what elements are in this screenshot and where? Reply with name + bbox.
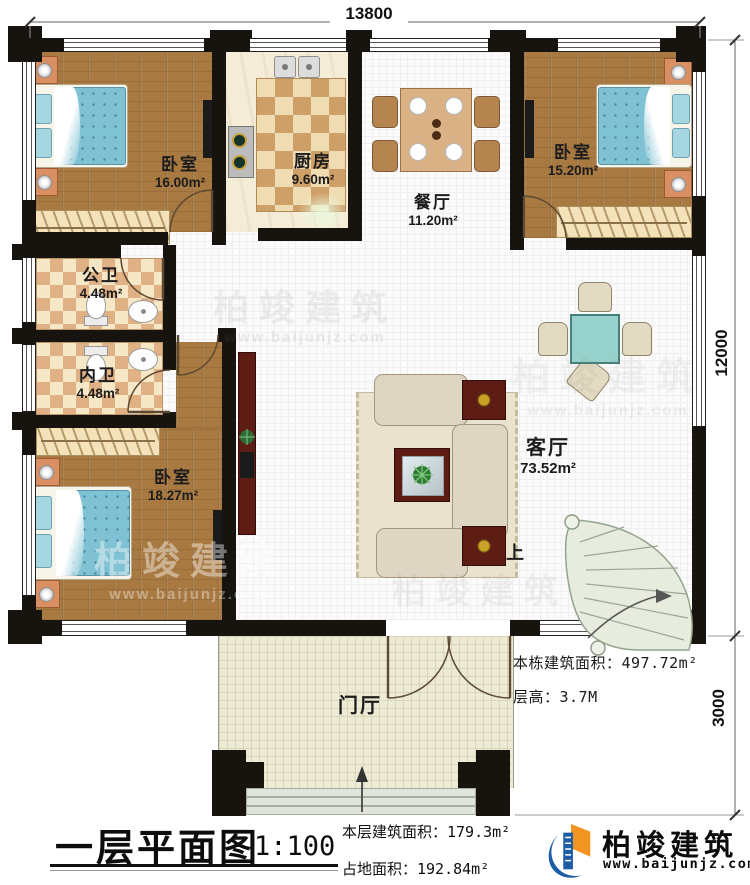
- window: [62, 620, 186, 636]
- wall: [36, 415, 176, 428]
- room-area: 15.20m²: [518, 163, 628, 179]
- dim-porch-height: 3000: [709, 676, 729, 740]
- wall: [163, 342, 176, 370]
- window: [558, 38, 660, 52]
- brand-website: www.baijunjz.com: [603, 856, 750, 872]
- corner-column: [676, 610, 706, 644]
- bed-sheet: [56, 490, 84, 576]
- room-label-bath-private: 内卫 4.48m²: [43, 366, 153, 401]
- wall-pier: [490, 30, 526, 52]
- bowl-icon: [432, 131, 441, 140]
- room-area: 4.48m²: [46, 286, 156, 302]
- pillow-icon: [672, 128, 690, 158]
- tv-icon: [203, 100, 212, 158]
- bedroom-bl-nook-floor: [176, 342, 222, 428]
- wall: [348, 52, 362, 241]
- dining-chair-icon: [372, 140, 398, 172]
- porch-column: [212, 750, 246, 816]
- window: [22, 62, 36, 200]
- wall: [36, 330, 176, 342]
- title-underline: [50, 870, 338, 871]
- square-table-icon: [570, 314, 620, 364]
- room-label-kitchen: 厨房 9.60m²: [258, 152, 368, 187]
- title-underline: [50, 864, 338, 867]
- wall-pier: [12, 412, 36, 430]
- land-area-note: 占地面积：192.84m²: [342, 858, 489, 879]
- window: [22, 345, 36, 411]
- room-name: 卧室: [518, 143, 628, 163]
- plate-icon: [445, 97, 463, 115]
- room-name: 餐厅: [378, 193, 488, 213]
- room-area: 16.00m²: [125, 175, 235, 191]
- floor-height-note: 层高：3.7M: [513, 686, 598, 707]
- room-name: 门厅: [305, 695, 415, 718]
- sofa-icon: [374, 374, 468, 426]
- kitchen-sink-icon: [274, 56, 296, 78]
- dim-main-height: 12000: [712, 316, 732, 390]
- window: [64, 38, 204, 52]
- corner-column: [8, 610, 42, 644]
- wall: [163, 245, 176, 332]
- plate-icon: [409, 97, 427, 115]
- nightstand-icon: [32, 580, 60, 608]
- dining-chair-icon: [474, 140, 500, 172]
- room-name: 公卫: [46, 266, 156, 286]
- room-label-foyer: 门厅: [305, 695, 415, 718]
- room-area: 4.48m²: [43, 386, 153, 402]
- room-label-bath-public: 公卫 4.48m²: [46, 266, 156, 301]
- dining-chair-icon: [474, 96, 500, 128]
- wall: [36, 245, 121, 258]
- nightstand-icon: [664, 58, 692, 86]
- room-label-dining: 餐厅 11.20m²: [378, 193, 488, 228]
- wall-pier: [12, 328, 36, 344]
- entry-step: [246, 788, 476, 797]
- room-name: 卧室: [118, 468, 228, 488]
- bed-sheet: [644, 87, 670, 165]
- corner-column: [676, 26, 706, 62]
- pillow-icon: [34, 94, 52, 124]
- pillow-icon: [34, 534, 52, 568]
- porch-column: [476, 750, 510, 816]
- window: [540, 620, 652, 636]
- entry-step: [246, 806, 476, 815]
- room-area: 11.20m²: [378, 213, 488, 229]
- room-name: 内卫: [43, 366, 153, 386]
- floorplan-page: { "dimensions": { "top_width": "13800", …: [0, 0, 750, 885]
- total-building-area-note: 本栋建筑面积：497.72m²: [513, 652, 698, 673]
- chair-icon: [538, 322, 568, 356]
- corner-column: [8, 26, 42, 62]
- room-label-bedroom-tl: 卧室 16.00m²: [125, 155, 235, 190]
- wardrobe-icon: [556, 206, 692, 238]
- wall-pier: [210, 30, 252, 52]
- drawing-scale: 1:100: [254, 831, 335, 862]
- window: [22, 258, 36, 322]
- sofa-icon: [376, 528, 468, 578]
- pillow-icon: [34, 496, 52, 530]
- window: [250, 38, 346, 52]
- window: [692, 256, 706, 426]
- room-name: 客厅: [488, 437, 608, 460]
- room-label-living: 客厅 73.52m²: [488, 437, 608, 477]
- room-area: 73.52m²: [488, 460, 608, 477]
- pillow-icon: [672, 94, 690, 124]
- porch-column: [458, 762, 476, 788]
- nightstand-icon: [664, 170, 692, 198]
- wardrobe-icon: [36, 424, 160, 456]
- tv-icon: [240, 452, 254, 478]
- dim-top-width: 13800: [330, 4, 408, 24]
- tv-icon: [213, 510, 222, 560]
- tv-cabinet-icon: [238, 352, 256, 535]
- window: [692, 72, 706, 196]
- chair-icon: [622, 322, 652, 356]
- room-label-bedroom-tr: 卧室 15.20m²: [518, 143, 628, 178]
- stove-burner: [232, 133, 247, 148]
- wall: [258, 228, 362, 241]
- bowl-icon: [432, 119, 441, 128]
- dining-chair-icon: [372, 96, 398, 128]
- side-table-icon: [462, 380, 506, 420]
- brand-logo-icon: [544, 820, 598, 880]
- nightstand-icon: [32, 458, 60, 486]
- pillow-icon: [34, 128, 52, 158]
- wall: [566, 238, 692, 250]
- plate-icon: [445, 143, 463, 161]
- floor-area-note: 本层建筑面积：179.3m²: [342, 821, 510, 842]
- window: [370, 38, 488, 52]
- bed-sheet: [54, 87, 80, 165]
- wall: [212, 52, 226, 245]
- wall-pier: [346, 30, 372, 52]
- room-area: 18.27m²: [118, 488, 228, 504]
- plate-icon: [409, 143, 427, 161]
- chair-icon: [578, 282, 612, 312]
- wall: [36, 232, 168, 245]
- kitchen-sink-icon: [298, 56, 320, 78]
- room-name: 卧室: [125, 155, 235, 175]
- room-area: 9.60m²: [258, 172, 368, 188]
- stair-up-label: 上: [495, 543, 535, 564]
- porch-column: [246, 762, 264, 788]
- window: [22, 455, 36, 595]
- washbasin-icon: [128, 300, 158, 323]
- entry-step: [246, 797, 476, 806]
- room-label-bedroom-bl: 卧室 18.27m²: [118, 468, 228, 503]
- coffee-table-glass: [402, 456, 444, 496]
- room-name: 厨房: [258, 152, 368, 172]
